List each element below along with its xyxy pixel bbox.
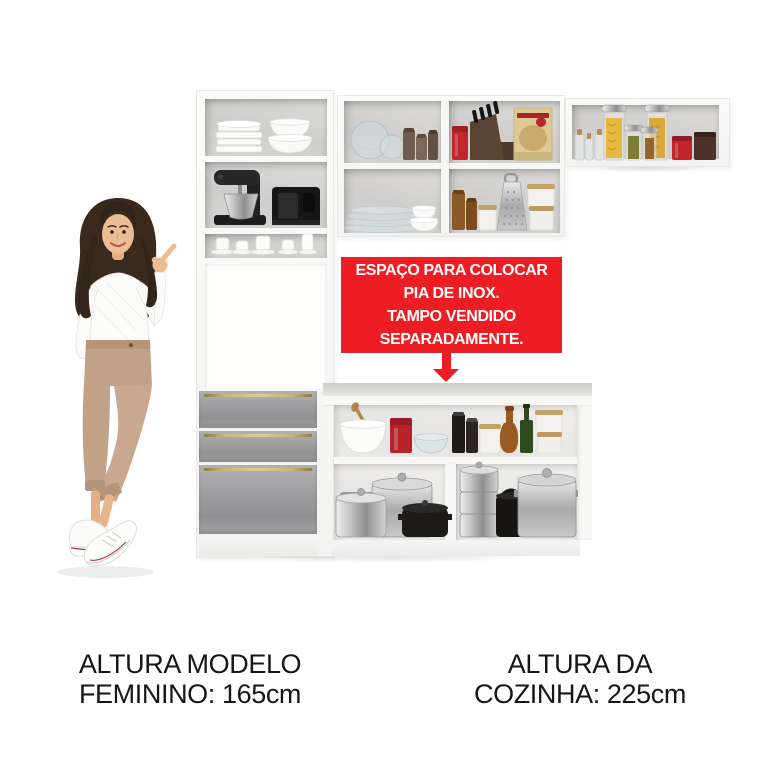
caption-kitchen-line-2: COZINHA: 225cm [415,679,745,709]
cork-bottles [575,129,604,160]
white-canister-counter [479,424,501,453]
brown-jars [403,128,438,160]
stacked-canisters [527,184,555,230]
steamer-stack [460,462,498,537]
amber-jars [452,190,477,230]
black-dutch-oven [398,500,452,537]
knife-block [470,101,518,160]
cereal-box [514,108,552,160]
black-jars [452,412,478,453]
woman-trousers [83,340,152,503]
annotation-box: ESPAÇO PARA COLOCAR PIA DE INOX. TAMPO V… [341,257,562,353]
white-plates-stack [216,121,262,153]
mixing-bowl-with-spoon [340,401,386,453]
woman-face [102,214,134,254]
annotation-arrow-icon [433,369,459,382]
grater [497,174,527,230]
storage-tins [672,132,716,160]
glass-bowl-counter [414,434,448,453]
red-canister-counter [390,418,412,453]
stock-pot [514,469,578,538]
product-image: ESPAÇO PARA COLOCAR PIA DE INOX. TAMPO V… [0,0,780,780]
annotation-line-1: ESPAÇO PARA COLOCAR [341,259,562,282]
annotation-line-3: TAMPO VENDIDO [341,305,562,328]
white-bowls-stack [268,119,312,153]
annotation-line-2: PIA DE INOX. [341,282,562,305]
white-bowls-small [410,206,438,231]
caption-model-height: ALTURA MODELO FEMININO: 165cm [20,649,360,709]
caption-kitchen-line-1: ALTURA DA [415,649,745,679]
glass-plates-stack [345,206,419,233]
stacked-canisters-counter [535,410,563,453]
amber-carafe [500,406,518,453]
red-canister [452,126,468,160]
green-bottle [520,404,533,453]
caption-kitchen-height: ALTURA DA COZINHA: 225cm [415,649,745,709]
model-woman [28,190,208,582]
caption-model-line-2: FEMININO: 165cm [20,679,360,709]
white-canister-small [478,205,497,230]
annotation-line-4: SEPARADAMENTE. [341,328,562,351]
white-sneakers [70,520,137,566]
glass-bowls [351,121,404,159]
annotation-arrow-shaft [442,353,451,369]
stand-mixer [214,170,266,225]
floor-shadow-model [58,566,154,578]
coffee-machine [272,187,320,225]
caption-model-line-1: ALTURA MODELO [20,649,360,679]
spice-jars [624,125,658,160]
cups-and-saucers [211,234,317,255]
